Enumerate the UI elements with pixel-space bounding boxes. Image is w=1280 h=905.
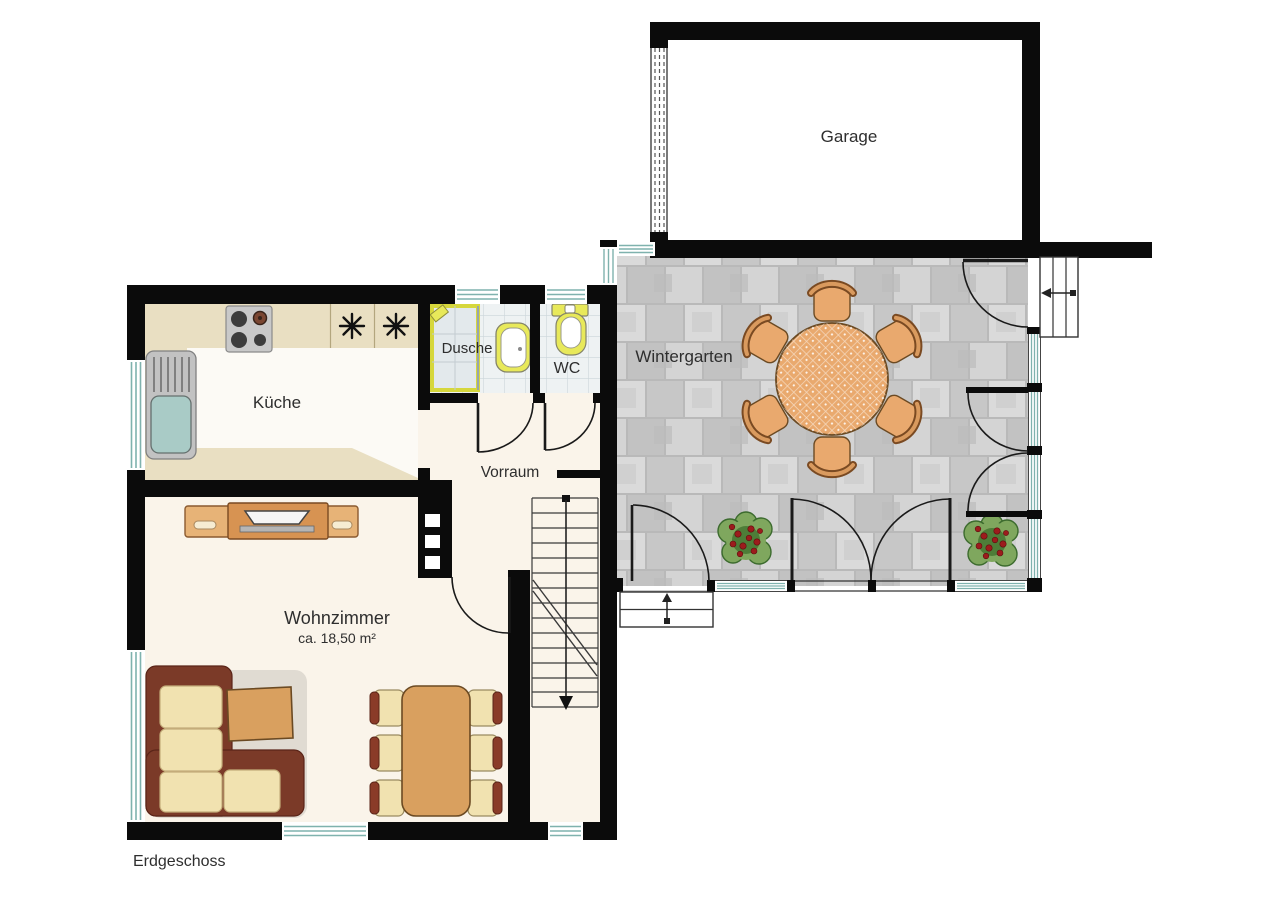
floor-plan-page: Garage Wintergarten Küche Dusche WC Vorr… [0, 0, 1280, 905]
toilet-icon [552, 304, 588, 355]
room-label-wintergarten: Wintergarten [635, 347, 732, 366]
room-label-vorraum: Vorraum [481, 464, 540, 481]
tv-sideboard-icon [185, 503, 358, 539]
washbasin-icon [496, 323, 530, 372]
window-glazing-icon [617, 242, 655, 256]
window-glazing-icon [282, 822, 368, 840]
room-kueche [145, 304, 418, 480]
dining-table-icon [402, 686, 470, 816]
plant-icon [964, 514, 1018, 566]
dining-set [370, 686, 502, 816]
room-label-dusche: Dusche [442, 340, 493, 357]
exterior-steps-arrow-icon [1040, 257, 1078, 337]
room-label-wc: WC [554, 360, 581, 377]
stove-burners-icon [226, 306, 272, 352]
garage-door-icon [650, 48, 668, 232]
window-glazing-icon [127, 360, 145, 470]
window-glazing-icon [548, 822, 583, 840]
room-wc [540, 304, 600, 393]
sink-icon [146, 351, 196, 459]
window-glazing-icon [545, 285, 587, 304]
freezer-star-icon [384, 314, 408, 338]
room-label-wohnzimmer: Wohnzimmer [284, 608, 390, 628]
coffee-table-icon [227, 687, 293, 741]
window-glazing-icon [127, 650, 145, 822]
window-glazing-icon [455, 285, 500, 304]
exterior-wall-extension [1040, 242, 1152, 258]
floor-title: Erdgeschoss [133, 853, 226, 870]
floor-plan-drawing: Garage Wintergarten Küche Dusche WC Vorr… [0, 0, 1280, 905]
chimney-icon [418, 480, 452, 578]
plant-icon [718, 512, 772, 564]
freezer-star-icon [340, 314, 364, 338]
room-area-wohnzimmer: ca. 18,50 m² [298, 630, 376, 646]
exterior-steps-arrow-icon [620, 592, 713, 627]
room-label-garage: Garage [821, 127, 878, 146]
room-label-kueche: Küche [253, 393, 301, 412]
window-glazing-icon [600, 247, 617, 285]
